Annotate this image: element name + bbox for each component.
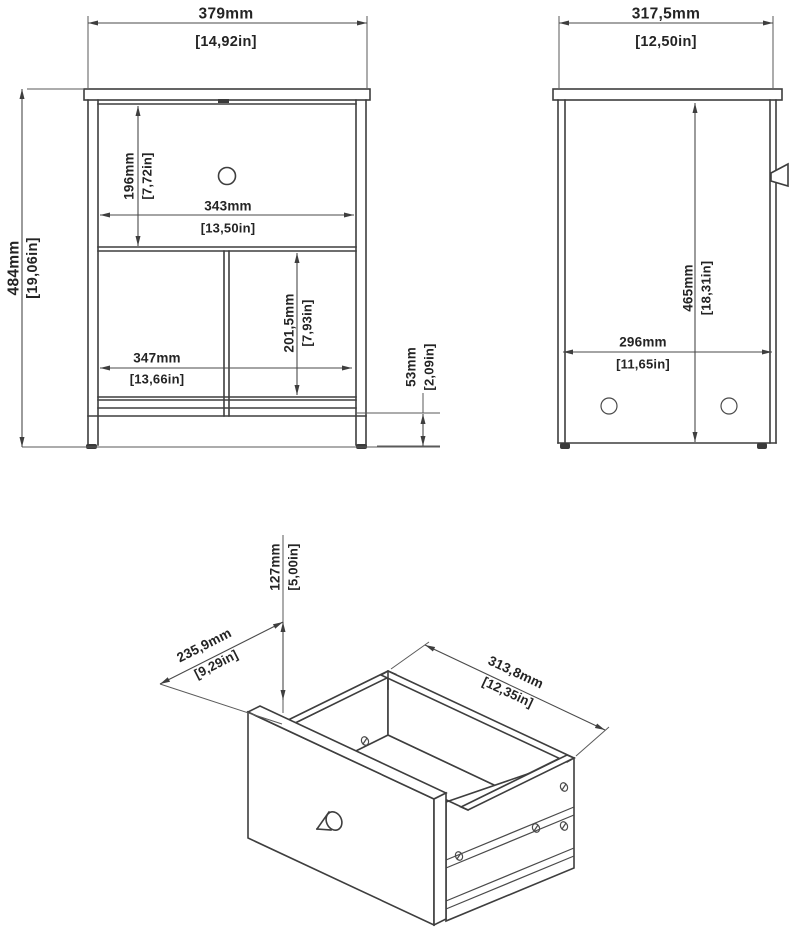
side-wall-tab xyxy=(771,164,788,186)
dim-side-inner-depth-in-label: [11,65in] xyxy=(616,357,670,372)
side-cam-hole-left xyxy=(601,398,617,414)
dim-front-height-mm-label: 484mm xyxy=(5,241,22,296)
dim-shelf-height: 201,5mm [7,93in] xyxy=(282,253,315,395)
dim-drawerbox-height-in-label: [5,00in] xyxy=(286,543,301,590)
dim-drawerbox-height-mm-label: 127mm xyxy=(268,543,283,591)
dim-base-height-mm-label: 53mm xyxy=(404,347,419,387)
dim-shelf-width: 347mm [13,66in] xyxy=(100,351,352,387)
front-view-drawing: 379mm [14,92in] 484mm [19,06in] 196mm [7… xyxy=(5,5,440,449)
dim-drawer-height-mm-label: 196mm xyxy=(122,152,137,200)
dim-front-height: 484mm [19,06in] xyxy=(5,89,83,447)
dim-side-inner-depth-mm-label: 296mm xyxy=(619,335,667,350)
side-front-foot xyxy=(560,443,570,449)
dim-side-height-in-label: [18,31in] xyxy=(699,261,714,316)
dim-front-width-mm-label: 379mm xyxy=(199,5,254,22)
drawer-knob-front xyxy=(219,168,236,185)
side-back-foot xyxy=(757,443,767,449)
dim-side-depth-in-label: [12,50in] xyxy=(635,34,697,50)
dim-drawerbox-height: 127mm [5,00in] xyxy=(268,535,301,713)
dim-side-inner-depth: 296mm [11,65in] xyxy=(563,335,772,372)
front-tabletop xyxy=(84,89,370,100)
dim-drawer-width-in-label: [13,50in] xyxy=(201,221,256,236)
dim-base-height: 53mm [2,09in] xyxy=(356,343,440,446)
dim-shelf-height-mm-label: 201,5mm xyxy=(282,293,297,352)
dim-side-height: 465mm [18,31in] xyxy=(681,103,714,442)
drawing-canvas: 379mm [14,92in] 484mm [19,06in] 196mm [7… xyxy=(0,0,800,934)
technical-drawing-page: 379mm [14,92in] 484mm [19,06in] 196mm [7… xyxy=(0,0,800,934)
dim-shelf-height-in-label: [7,93in] xyxy=(300,299,315,346)
side-cam-hole-right xyxy=(721,398,737,414)
dim-shelf-width-in-label: [13,66in] xyxy=(130,372,185,387)
dim-front-width-in-label: [14,92in] xyxy=(195,34,257,50)
dim-front-width: 379mm [14,92in] xyxy=(88,5,367,88)
side-view-drawing: 317,5mm [12,50in] 465mm [18,31in] 296mm … xyxy=(553,5,788,449)
dim-side-depth: 317,5mm [12,50in] xyxy=(559,5,773,88)
drawer-front-panel-end-edge xyxy=(434,793,446,925)
dim-base-height-in-label: [2,09in] xyxy=(422,343,437,390)
dim-drawer-width-mm-label: 343mm xyxy=(204,199,252,214)
dim-front-height-in-label: [19,06in] xyxy=(25,237,41,299)
drawer-gap-mark xyxy=(218,99,229,103)
drawer-isometric-drawing: 127mm [5,00in] 235,9mm [9,29in] 313,8mm … xyxy=(160,535,609,925)
dim-shelf-width-mm-label: 347mm xyxy=(133,351,181,366)
dim-drawer-height-in-label: [7,72in] xyxy=(140,152,155,199)
dim-side-depth-mm-label: 317,5mm xyxy=(632,5,700,22)
dim-side-height-mm-label: 465mm xyxy=(681,264,696,312)
side-tabletop xyxy=(553,89,782,100)
dim-drawer-height: 196mm [7,72in] xyxy=(122,106,155,246)
